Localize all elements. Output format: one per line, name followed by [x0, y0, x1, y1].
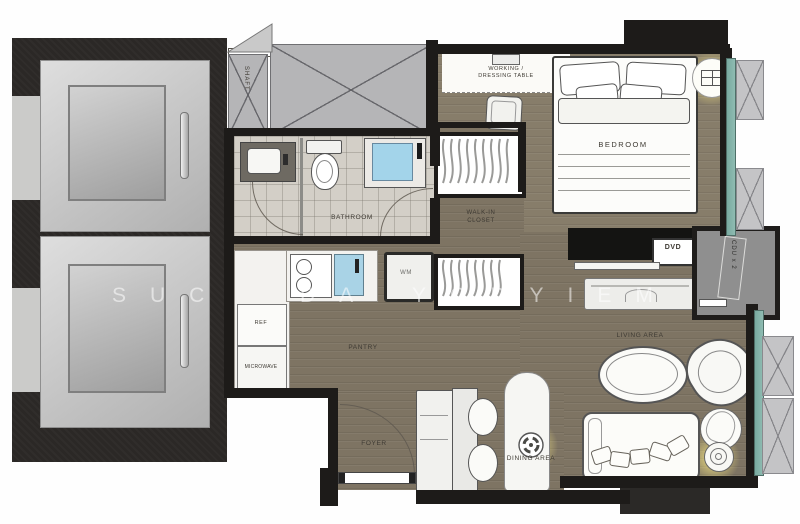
vanity-faucet-icon: [283, 154, 288, 165]
window-ledge-panel: [762, 336, 794, 396]
closet-hanging-unit-top: [434, 132, 526, 198]
mirror-icon: [492, 54, 520, 65]
wall-segment: [436, 122, 526, 128]
table-lamp: [704, 442, 734, 472]
elevator-2: [40, 236, 210, 428]
elevator-1: [40, 60, 210, 232]
floor-plan: SHAFT WORKING / DRESSING TABLE BEDROOM B…: [0, 0, 800, 524]
bed: [552, 56, 698, 214]
vanity-counter: [240, 142, 296, 182]
tv-screen: [574, 262, 660, 270]
dining-sideboard: [416, 390, 454, 492]
entrance-door-leaf: [338, 472, 416, 484]
cdu-room: [692, 226, 780, 320]
foyer-label: FOYER: [361, 440, 386, 448]
dining-chair: [468, 444, 498, 482]
bedroom-window: [726, 58, 736, 236]
wall-segment: [624, 20, 728, 50]
microwave-label: MICROWAVE: [245, 364, 278, 371]
dining-chair: [468, 398, 498, 436]
window-ledge-panel: [762, 398, 794, 474]
coffee-table: [598, 346, 688, 404]
watermark-text: SUC: [112, 284, 228, 308]
bedroom-label: BEDROOM: [598, 140, 647, 150]
hanging-clothes-icon: [438, 136, 514, 186]
burner-icon: [296, 259, 312, 275]
bathroom-label: BATHROOM: [331, 214, 373, 222]
wall-segment: [328, 392, 338, 476]
wall-segment: [224, 128, 234, 398]
toilet-tank: [306, 140, 342, 154]
wall-segment: [224, 236, 440, 244]
sofa-cushion: [609, 451, 631, 469]
cdu-room-door: [699, 299, 727, 307]
wall-segment: [430, 198, 440, 244]
walk-in-closet-label: WALK-IN CLOSET: [467, 210, 496, 226]
cdu-label: CDU x 2: [728, 240, 736, 270]
vanity-basin: [247, 148, 281, 174]
elevator-core: [12, 38, 227, 462]
watermark-text: YODYIEM: [412, 284, 677, 308]
pantry-label: PANTRY: [348, 344, 377, 352]
shower-stall: [364, 138, 426, 188]
dvd-label: DVD: [665, 243, 682, 252]
lobby-notch-top: [12, 96, 42, 200]
sofa-cushion: [629, 448, 650, 465]
wall-segment: [518, 122, 526, 192]
ref-label: REF: [255, 320, 268, 327]
toilet-bowl: [311, 153, 339, 190]
shaft-label: SHAFT: [241, 66, 249, 91]
shower-valve-icon: [417, 143, 422, 159]
duvet-fold: [558, 98, 690, 124]
sink-tap-icon: [355, 259, 359, 273]
wall-segment: [416, 490, 630, 504]
window-ledge-panel: [736, 168, 764, 230]
working-dressing-label: WORKING / DRESSING TABLE: [478, 66, 534, 80]
living-area-label: LIVING AREA: [616, 332, 663, 340]
watermark-text: DA: [300, 284, 377, 308]
ac-plenum-box: [270, 44, 432, 136]
shaft-door-swing-icon: [224, 20, 280, 54]
wall-segment: [224, 388, 338, 398]
wall-segment: [224, 128, 440, 136]
window-ledge-panel: [736, 60, 764, 120]
shower-tray: [372, 143, 413, 181]
dining-area-label: DINING AREA: [507, 455, 556, 463]
wm-label: WM: [400, 270, 412, 278]
wall-segment: [560, 476, 758, 488]
lobby-notch-bottom: [12, 288, 42, 392]
balcony-ledge: [620, 486, 710, 514]
